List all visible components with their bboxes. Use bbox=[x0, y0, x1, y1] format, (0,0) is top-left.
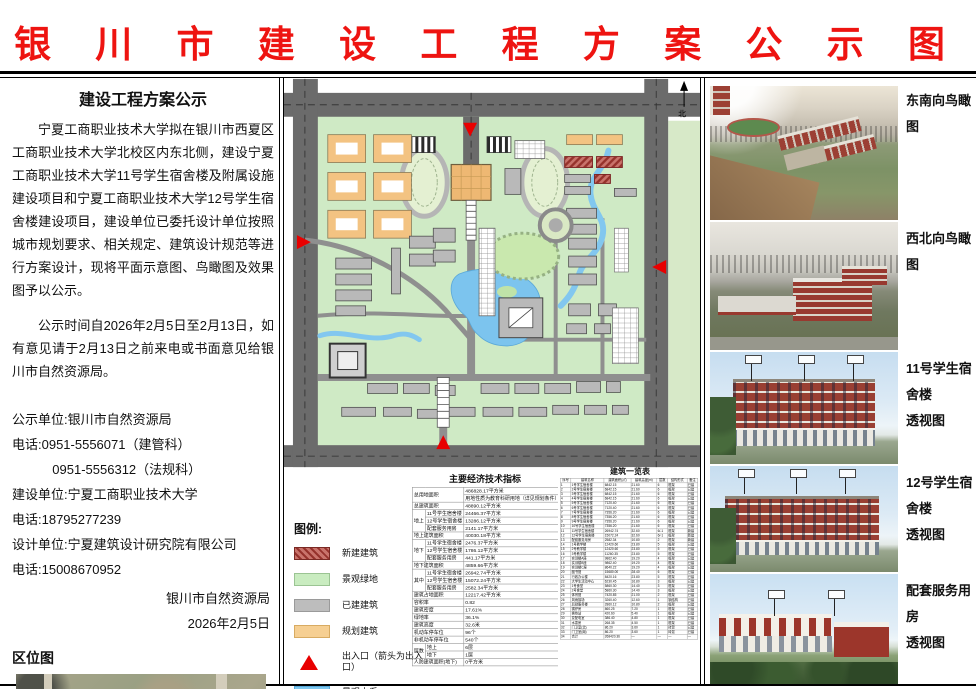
panel-label-3: 11号学生宿舍楼透视图 bbox=[906, 356, 976, 434]
panel-label-5: 配套服务用房透视图 bbox=[906, 578, 976, 656]
legend-item: 规划建筑 bbox=[294, 625, 424, 638]
indicator-cell: 12号学生宿舍楼 bbox=[425, 577, 463, 584]
signature-org: 银川市自然资源局 bbox=[12, 586, 270, 611]
parking-rows bbox=[487, 137, 511, 153]
orange-swatch-icon bbox=[294, 625, 330, 638]
courtyard-building bbox=[499, 298, 543, 338]
indicator-cell: 2141.17平方米 bbox=[464, 525, 558, 532]
contact-info: 公示单位:银川市自然资源局 电话:0951-5556071（建管科） 0951-… bbox=[12, 407, 274, 582]
indicator-cell: 36.1% bbox=[464, 614, 558, 621]
building-table-row: 34合计268420.36———— bbox=[560, 635, 698, 640]
indicator-cell: 96个 bbox=[464, 629, 558, 636]
indicator-cell: 地上建筑面积 bbox=[412, 532, 463, 539]
location-satellite-map: 项目位置 bbox=[16, 674, 266, 689]
indicator-cell: 540个 bbox=[464, 636, 558, 643]
indicator-table-block: 主要经济技术指标 总用地面积486828.17平方米用地性质为教育科研用地（详见… bbox=[412, 472, 558, 683]
gate-crosswalk bbox=[437, 377, 449, 427]
legend-item-label: 景观绿地 bbox=[342, 574, 378, 585]
satellite-road bbox=[44, 674, 53, 689]
building-table-title: 建筑一览表 bbox=[560, 466, 700, 477]
indicator-cell: 建筑占地面积 bbox=[412, 591, 463, 598]
indicator-cell: 建筑高度 bbox=[412, 621, 463, 628]
indicator-cell: 1786.12平方米 bbox=[464, 547, 558, 554]
announcement-paragraph-2: 公示时间自2026年2月5日至2月13日，如有意见请于2月13日之前来电或书面意… bbox=[12, 314, 274, 383]
builder-line: 建设单位:宁夏工商职业技术大学 bbox=[12, 482, 274, 507]
legend-item: 新建建筑 bbox=[294, 547, 424, 560]
aerial-view-southeast bbox=[710, 86, 898, 220]
green-swatch-icon bbox=[294, 573, 330, 586]
announcement-panel: 建设工程方案公示 宁夏工商职业技术大学拟在银川市西夏区工商职业技术大学北校区内东… bbox=[12, 84, 274, 689]
hatch-red-swatch-icon bbox=[294, 547, 330, 560]
legend-title: 图例: bbox=[294, 520, 424, 537]
indicator-cell: 总建筑面积 bbox=[412, 502, 463, 509]
indicator-cell: 其中 bbox=[412, 569, 425, 591]
indicator-cell: 2476.37平方米 bbox=[464, 539, 558, 546]
indicator-cell: 地下 bbox=[412, 539, 425, 561]
court-grid bbox=[614, 228, 628, 272]
indicator-cell: 11号学生宿舍楼 bbox=[425, 569, 463, 576]
panel-label-1: 东南向鸟瞰图 bbox=[906, 88, 976, 140]
builder-tel-line: 电话:18795277239 bbox=[12, 507, 274, 532]
indicator-table-title: 主要经济技术指标 bbox=[412, 472, 558, 485]
indicator-cell: 配套服务用房 bbox=[425, 584, 463, 591]
legend-item: 出入口（箭头为出入口） bbox=[294, 651, 424, 673]
indicator-cell: 配套服务用房 bbox=[425, 554, 463, 561]
indicator-cell: 地上 bbox=[412, 510, 425, 532]
parking-rows bbox=[411, 137, 435, 153]
indicator-cell: 配套服务用房 bbox=[425, 525, 463, 532]
gray-swatch-icon bbox=[294, 599, 330, 612]
signature-block: 银川市自然资源局 2026年2月5日 bbox=[12, 586, 274, 636]
building-table-cell: 34 bbox=[560, 635, 571, 640]
building-table-cell: — bbox=[687, 635, 698, 640]
indicator-cell: 17.61% bbox=[464, 606, 558, 613]
notice-tel-line-2: 0951-5556312（法规科） bbox=[12, 457, 274, 482]
legend-item: 已建建筑 bbox=[294, 599, 424, 612]
indicator-cell: 4859.66平方米 bbox=[464, 562, 558, 569]
circular-plaza bbox=[540, 209, 572, 241]
legend-item-label: 规划建筑 bbox=[342, 626, 378, 637]
announcement-paragraph-1: 宁夏工商职业技术大学拟在银川市西夏区工商职业技术大学北校区内东北侧，建设宁夏工商… bbox=[12, 118, 274, 302]
building-table-cell: — bbox=[668, 635, 687, 640]
legend-item-label: 已建建筑 bbox=[342, 600, 378, 611]
building-table-cell: — bbox=[631, 635, 657, 640]
indicator-cell: 容积率 bbox=[412, 599, 463, 606]
indicator-cell: 0.82 bbox=[464, 599, 558, 606]
indicator-cell: 2582.34平方米 bbox=[464, 584, 558, 591]
indicator-cell: 12号学生宿舍楼 bbox=[425, 547, 463, 554]
signature-date: 2026年2月5日 bbox=[12, 611, 270, 636]
indicator-cell: 6层 bbox=[464, 644, 558, 651]
poster-title: 银 川 市 建 设 工 程 方 案 公 示 图 bbox=[0, 14, 976, 68]
building-table-cell: — bbox=[657, 635, 668, 640]
building-table-cell: 268420.36 bbox=[604, 635, 631, 640]
panel-label-2: 西北向鸟瞰图 bbox=[906, 226, 976, 278]
panel-label-4: 12号学生宿舍楼透视图 bbox=[906, 470, 976, 548]
indicator-cell: 0平方米 bbox=[464, 658, 558, 665]
designer-line: 设计单位:宁夏建筑设计研究院有限公司 bbox=[12, 532, 274, 557]
title-divider bbox=[0, 71, 976, 78]
indicator-cell: 层数 bbox=[412, 644, 425, 659]
aerial-view-northwest bbox=[710, 222, 898, 350]
court-grid bbox=[612, 308, 638, 364]
site-plan-drawing: 北 bbox=[284, 78, 700, 468]
indicator-cell: 40030.18平方米 bbox=[464, 532, 558, 539]
building-table-block: 建筑一览表 序号建筑名称建筑面积(㎡)建筑高度(m)层数结构形式备注11号学生宿… bbox=[560, 466, 700, 689]
perspective-service-building bbox=[710, 574, 898, 684]
indicator-cell: 机动车停车位 bbox=[412, 629, 463, 636]
announcement-heading: 建设工程方案公示 bbox=[12, 86, 274, 110]
building-table: 序号建筑名称建筑面积(㎡)建筑高度(m)层数结构形式备注11号学生宿舍楼6842… bbox=[560, 478, 698, 639]
indicator-cell: 12号学生宿舍楼 bbox=[425, 517, 463, 524]
indicator-cell: 441.17平方米 bbox=[464, 554, 558, 561]
building-table-cell: 合计 bbox=[571, 635, 604, 640]
indicator-cell: 12217.42平方米 bbox=[464, 591, 558, 598]
indicator-cell: 26942.74平方米 bbox=[464, 569, 558, 576]
indicator-cell: 15072.24平方米 bbox=[464, 577, 558, 584]
legend-item: 景观绿地 bbox=[294, 573, 424, 586]
indicator-cell: 绿地率 bbox=[412, 614, 463, 621]
indicator-cell: 24466.37平方米 bbox=[464, 510, 558, 517]
renderings-panel: 东南向鸟瞰图 西北向鸟瞰图 11号学生宿舍楼透视图 12号学生宿舍楼透视图 bbox=[704, 78, 976, 684]
designer-tel-line: 电话:15008670952 bbox=[12, 557, 274, 582]
indicator-cell: 32.6米 bbox=[464, 621, 558, 628]
indicator-table: 总用地面积486828.17平方米用地性质为教育科研用地（详见规划条件）总建筑面… bbox=[412, 487, 558, 666]
indicator-cell: 地下建筑面积 bbox=[412, 562, 463, 569]
indicator-cell: 用地性质为教育科研用地（详见规划条件） bbox=[464, 495, 558, 502]
north-label: 北 bbox=[678, 110, 686, 119]
indicator-cell: 建筑密度 bbox=[412, 606, 463, 613]
indicator-cell: 486828.17平方米 bbox=[464, 487, 558, 494]
legend-items: 新建建筑景观绿地已建建筑规划建筑出入口（箭头为出入口）景观水系校园内车行道路兼消… bbox=[294, 547, 424, 689]
indicator-cell: 11号学生宿舍楼 bbox=[425, 539, 463, 546]
indicator-cell: 48890.12平方米 bbox=[464, 502, 558, 509]
legend: 图例: 新建建筑景观绿地已建建筑规划建筑出入口（箭头为出入口）景观水系校园内车行… bbox=[294, 520, 424, 689]
indicator-cell: 地上 bbox=[425, 644, 463, 651]
indicator-cell: 11号学生宿舍楼 bbox=[425, 510, 463, 517]
legend-item-label: 新建建筑 bbox=[342, 548, 378, 559]
indicator-cell: 人防建筑面积(地下) bbox=[412, 658, 463, 665]
indicator-cell: 13286.12平方米 bbox=[464, 517, 558, 524]
axis-terraces bbox=[479, 228, 495, 316]
notice-tel-line: 电话:0951-5556071（建管科） bbox=[12, 432, 274, 457]
satellite-road bbox=[216, 674, 227, 689]
triangle-swatch-icon bbox=[294, 655, 330, 670]
site-plan-panel: 北 图例: 新建建筑景观绿地已建建筑规划建筑出入口（箭头为出入口）景观水系校园内… bbox=[284, 78, 700, 684]
public-notice-poster: 银 川 市 建 设 工 程 方 案 公 示 图 建设工程方案公示 宁夏工商职业技… bbox=[0, 0, 976, 689]
perspective-dorm-12 bbox=[710, 466, 898, 572]
indicator-cell: 非机动车停车位 bbox=[412, 636, 463, 643]
indicator-cell: 地下 bbox=[425, 651, 463, 658]
grid-court bbox=[515, 141, 545, 159]
square-building bbox=[330, 344, 366, 378]
notice-org-line: 公示单位:银川市自然资源局 bbox=[12, 407, 274, 432]
location-map-title: 区位图 bbox=[12, 648, 274, 668]
perspective-dorm-11 bbox=[710, 352, 898, 464]
indicator-cell: 1层 bbox=[464, 651, 558, 658]
indicator-cell: 总用地面积 bbox=[412, 487, 463, 502]
